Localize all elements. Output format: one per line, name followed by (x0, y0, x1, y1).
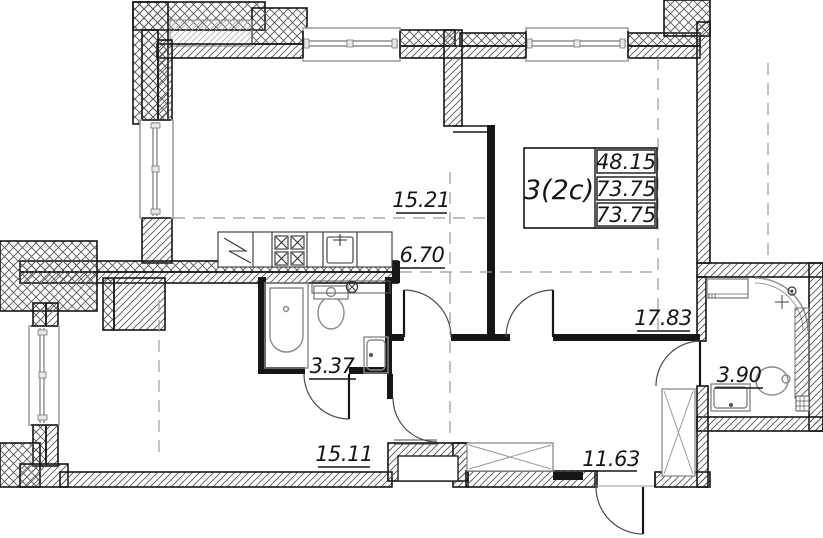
wall-pier (444, 30, 462, 126)
shaft-opening (398, 456, 458, 481)
label-shower-room: 3.90 (717, 363, 762, 387)
threshold-mark (553, 472, 583, 480)
door-bedroom (506, 290, 553, 337)
window-left-lower (29, 326, 59, 425)
window-left-upper (140, 120, 173, 218)
unit-area-3: 73.75 (596, 203, 656, 227)
unit-area-2: 73.75 (596, 177, 656, 201)
unit-type-label: 3(2c) (524, 175, 594, 206)
floor-plan-drawing: 3(2c) 48.15 73.75 73.75 15.21 6.70 17.83… (0, 0, 823, 538)
unit-stamp-table: 3(2c) 48.15 73.75 73.75 (524, 148, 657, 228)
door-bathroom (304, 374, 349, 419)
bathtub-icon (265, 283, 308, 368)
door-living-room (393, 398, 437, 444)
wardrobe-icon (467, 443, 553, 471)
kitchen-counter (218, 232, 392, 267)
floor-plan-canvas: 3(2c) 48.15 73.75 73.75 15.21 6.70 17.83… (0, 0, 823, 538)
cabinet-icon (662, 389, 695, 476)
entrance-door (595, 472, 655, 534)
unit-area-1: 48.15 (596, 150, 656, 174)
toilet-icon (314, 286, 348, 329)
label-bathroom: 3.37 (310, 354, 356, 378)
label-hallway: 11.63 (582, 447, 640, 471)
label-kitchen-living: 15.21 (392, 188, 450, 212)
door-corridor (404, 290, 451, 337)
label-bedroom: 17.83 (634, 306, 692, 330)
door-shower-room (656, 341, 700, 386)
label-living-room: 15.11 (315, 442, 373, 466)
window-top-left (303, 28, 400, 61)
shower-room-counter (707, 279, 748, 298)
window-top-right (526, 28, 628, 61)
label-corridor: 6.70 (400, 243, 445, 267)
insulation-block (170, 20, 252, 46)
duct-shaft (795, 308, 809, 411)
